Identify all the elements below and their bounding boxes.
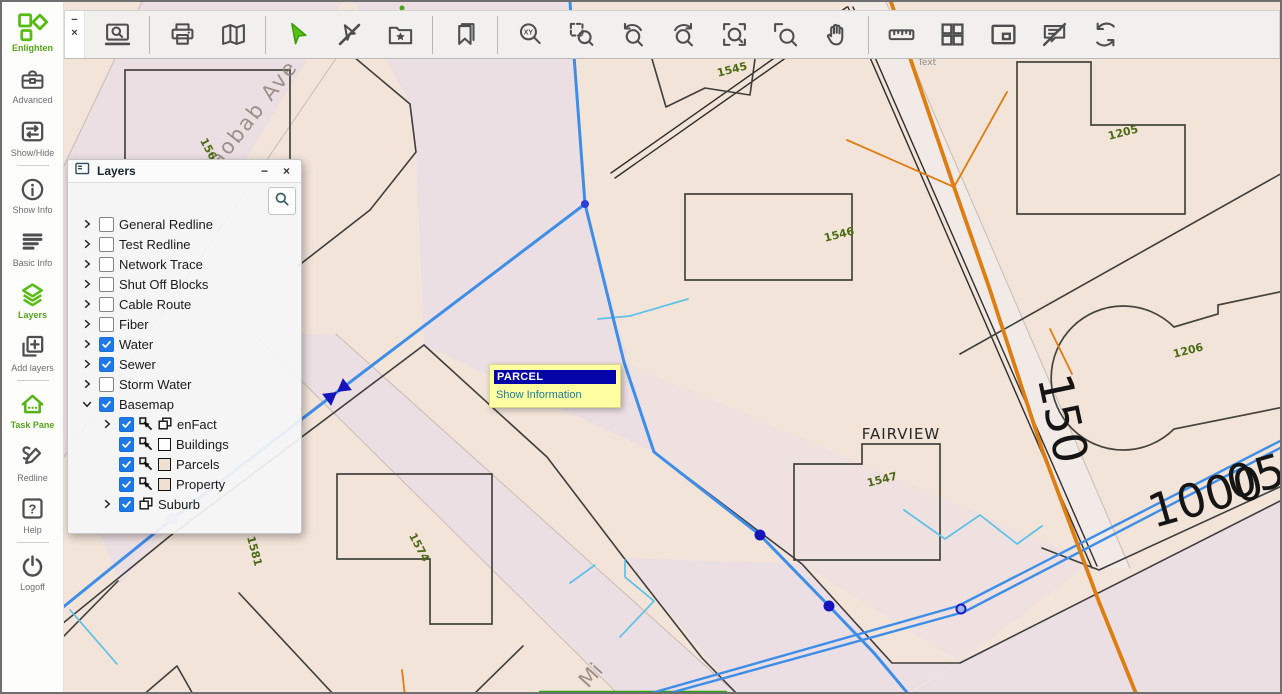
legend-swatch (158, 438, 171, 451)
sidebar-item-show-hide[interactable]: Show/Hide (2, 111, 63, 163)
sidebar-item-add-layers[interactable]: Add layers (2, 326, 63, 378)
toolbar-group (150, 15, 265, 55)
power-icon (19, 551, 46, 581)
layer-row-buildings: Buildings (81, 434, 301, 454)
layer-label: Storm Water (119, 377, 191, 392)
layer-label: Suburb (158, 497, 200, 512)
svg-text:?: ? (29, 502, 37, 517)
sidebar-divider (17, 380, 49, 381)
sidebar-item-logoff[interactable]: Logoff (2, 545, 63, 597)
layers-copy-icon (158, 417, 172, 431)
svg-text:XY: XY (523, 29, 533, 36)
layer-checkbox[interactable] (99, 357, 114, 372)
sidebar-item-enlighten[interactable]: Enlighten (2, 6, 63, 58)
layer-label: Parcels (176, 457, 219, 472)
toolbar-close-button[interactable]: × (71, 29, 77, 38)
legend-swatch (158, 478, 171, 491)
zoom-selected-button[interactable] (764, 15, 806, 55)
sidebar-item-label: Layers (18, 311, 47, 320)
cursor-select-icon (139, 457, 153, 471)
sidebar-item-label: Show/Hide (11, 149, 55, 158)
layer-row-fiber: Fiber (81, 314, 301, 334)
info-circle-icon (19, 174, 46, 204)
overview-map-button[interactable] (982, 15, 1024, 55)
layer-checkbox[interactable] (99, 217, 114, 232)
toolbar-group (85, 15, 149, 55)
chevron-right-icon[interactable] (81, 378, 94, 390)
layer-checkbox[interactable] (99, 257, 114, 272)
zoom-extent-button[interactable] (713, 15, 755, 55)
chevron-down-icon[interactable] (81, 398, 94, 410)
cursor-select-icon (139, 437, 153, 451)
legend-swatch (158, 458, 171, 471)
layer-row-parcels: Parcels (81, 454, 301, 474)
measure-button[interactable] (880, 15, 922, 55)
layer-checkbox[interactable] (119, 437, 134, 452)
layer-row-property: Property (81, 474, 301, 494)
layer-checkbox[interactable] (99, 317, 114, 332)
layer-checkbox[interactable] (119, 477, 134, 492)
layer-row-sewer: Sewer (81, 354, 301, 374)
layer-checkbox[interactable] (99, 297, 114, 312)
sidebar-item-label: Redline (17, 474, 48, 483)
zoom-window-button[interactable] (560, 15, 602, 55)
search-icon (274, 191, 290, 212)
layers-stack-icon (19, 279, 46, 309)
tooltip-title: PARCEL (494, 370, 616, 384)
select-button[interactable] (277, 15, 319, 55)
toolbar-window-controls: − × (65, 11, 85, 58)
layer-row-cable-route: Cable Route (81, 294, 301, 314)
find-on-map-button[interactable] (96, 15, 138, 55)
layer-row-test-redline: Test Redline (81, 234, 301, 254)
layer-label: enFact (177, 417, 217, 432)
toolbar-group (266, 15, 432, 55)
layer-label: Sewer (119, 357, 156, 372)
cursor-select-icon (139, 477, 153, 491)
layer-row-basemap: Basemap (81, 394, 301, 414)
toolbar-groups: XY (85, 15, 1137, 55)
chevron-right-icon[interactable] (81, 318, 94, 330)
toolbar-group (869, 15, 1137, 55)
sidebar-item-redline[interactable]: Redline (2, 436, 63, 488)
sidebar-item-task-pane[interactable]: Task Pane (2, 383, 63, 435)
show-hide-icon (19, 117, 46, 147)
cursor-select-icon (139, 417, 153, 431)
chevron-right-icon[interactable] (101, 498, 114, 510)
layers-panel: Layers − × General RedlineTest RedlineNe… (67, 159, 302, 534)
layer-label: Test Redline (119, 237, 191, 252)
layers-panel-header: Layers − × (68, 160, 301, 183)
sidebar-item-label: Show Info (12, 206, 52, 215)
sidebar-item-show-info[interactable]: Show Info (2, 168, 63, 220)
sidebar-divider (17, 165, 49, 166)
zoom-previous-button[interactable] (611, 15, 653, 55)
sidebar: EnlightenAdvancedShow/HideShow InfoBasic… (2, 2, 64, 692)
layer-label: Buildings (176, 437, 229, 452)
chevron-right-icon[interactable] (81, 358, 94, 370)
hide-callouts-button[interactable] (1033, 15, 1075, 55)
layer-label: General Redline (119, 217, 213, 232)
panel-window-icon (75, 162, 90, 180)
sidebar-item-label: Logoff (20, 583, 45, 592)
layer-row-storm-water: Storm Water (81, 374, 301, 394)
enlighten-logo-icon (15, 12, 51, 42)
house-task-icon (19, 389, 46, 419)
layer-checkbox[interactable] (99, 397, 114, 412)
app-window: Baobab AveMiFAIRVIEW150100005Text1565154… (0, 0, 1282, 694)
layer-label: Property (176, 477, 225, 492)
sidebar-item-basic-info[interactable]: Basic Info (2, 221, 63, 273)
map-tooltip: PARCEL Show Information (489, 364, 621, 408)
print-button[interactable] (161, 15, 203, 55)
sidebar-item-label: Basic Info (13, 259, 53, 268)
layer-checkbox[interactable] (119, 457, 134, 472)
toolbar-minimize-button[interactable]: − (71, 16, 77, 25)
layer-row-general-redline: General Redline (81, 214, 301, 234)
chevron-right-icon[interactable] (81, 238, 94, 250)
sidebar-divider (17, 542, 49, 543)
refresh-button[interactable] (1084, 15, 1126, 55)
zoom-next-button[interactable] (662, 15, 704, 55)
sidebar-item-help[interactable]: ?Help (2, 488, 63, 540)
add-to-favorites-button[interactable] (379, 15, 421, 55)
sidebar-item-label: Advanced (12, 96, 52, 105)
layer-label: Shut Off Blocks (119, 277, 208, 292)
layers-copy-icon (139, 497, 153, 511)
layer-row-suburb: Suburb (81, 494, 301, 514)
tile-layout-button[interactable] (931, 15, 973, 55)
layer-label: Network Trace (119, 257, 203, 272)
svg-text:Text: Text (917, 58, 937, 68)
sidebar-item-label: Enlighten (12, 44, 53, 53)
layer-search-button[interactable] (268, 187, 296, 215)
layer-checkbox[interactable] (99, 237, 114, 252)
map-button[interactable] (212, 15, 254, 55)
sidebar-item-layers[interactable]: Layers (2, 273, 63, 325)
toolbar-group (433, 15, 497, 55)
layer-checkbox[interactable] (119, 417, 134, 432)
question-square-icon: ? (19, 494, 46, 524)
layer-row-water: Water (81, 334, 301, 354)
panel-minimize-button[interactable]: − (257, 165, 272, 177)
toolbar: − × XY (64, 10, 1280, 59)
show-information-link[interactable]: Show Information (494, 389, 616, 401)
toolbox-icon (19, 64, 46, 94)
chevron-right-icon[interactable] (101, 418, 114, 430)
bookmarks-button[interactable] (444, 15, 486, 55)
chevron-right-icon[interactable] (81, 298, 94, 310)
panel-close-button[interactable]: × (279, 165, 294, 177)
layer-label: Basemap (119, 397, 174, 412)
sidebar-item-advanced[interactable]: Advanced (2, 58, 63, 110)
list-lines-icon (19, 227, 46, 257)
layer-label: Water (119, 337, 153, 352)
sidebar-item-label: Help (23, 526, 42, 535)
layer-row-network-trace: Network Trace (81, 254, 301, 274)
chevron-right-icon[interactable] (81, 338, 94, 350)
layer-label: Cable Route (119, 297, 191, 312)
layers-panel-title: Layers (97, 164, 250, 178)
zoom-xy-button[interactable]: XY (509, 15, 551, 55)
layer-label: Fiber (119, 317, 149, 332)
layer-checkbox[interactable] (119, 497, 134, 512)
layer-checkbox[interactable] (99, 377, 114, 392)
add-layers-icon (19, 332, 46, 362)
layer-row-enfact: enFact (81, 414, 301, 434)
layer-checkbox[interactable] (99, 277, 114, 292)
pan-button[interactable] (815, 15, 857, 55)
sidebar-item-label: Add layers (11, 364, 54, 373)
chevron-right-icon[interactable] (81, 258, 94, 270)
sidebar-item-label: Task Pane (11, 421, 55, 430)
svg-text:FAIRVIEW: FAIRVIEW (862, 425, 941, 443)
layer-checkbox[interactable] (99, 337, 114, 352)
layers-tree: General RedlineTest RedlineNetwork Trace… (68, 183, 301, 514)
clear-selection-button[interactable] (328, 15, 370, 55)
chevron-right-icon[interactable] (81, 218, 94, 230)
toolbar-group: XY (498, 15, 868, 55)
pencil-scribble-icon (19, 442, 46, 472)
layer-row-shut-off-blocks: Shut Off Blocks (81, 274, 301, 294)
chevron-right-icon[interactable] (81, 278, 94, 290)
